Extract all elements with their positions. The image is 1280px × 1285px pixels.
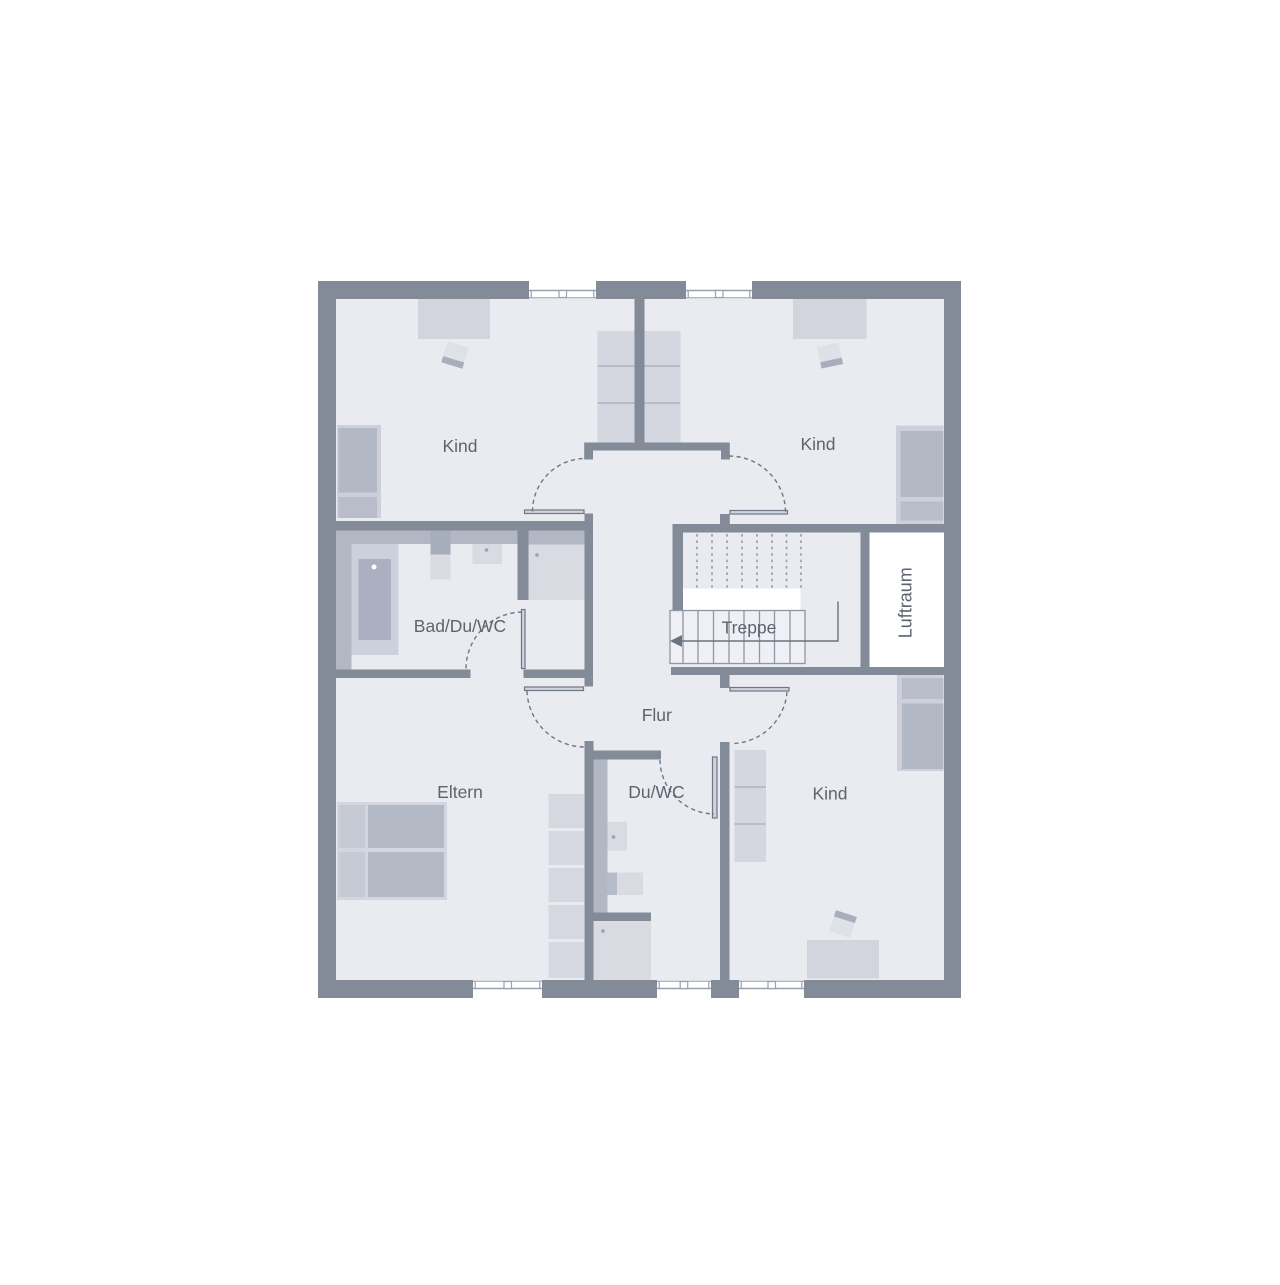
svg-text:Flur: Flur [642, 705, 672, 725]
svg-text:Kind: Kind [442, 436, 477, 456]
svg-text:Treppe: Treppe [722, 618, 777, 638]
svg-text:Kind: Kind [800, 434, 835, 454]
svg-text:Eltern: Eltern [437, 782, 483, 802]
svg-text:Bad/Du/WC: Bad/Du/WC [414, 616, 506, 636]
svg-text:Luftraum: Luftraum [896, 567, 916, 638]
svg-text:Kind: Kind [812, 784, 847, 804]
svg-text:Du/WC: Du/WC [628, 782, 684, 802]
